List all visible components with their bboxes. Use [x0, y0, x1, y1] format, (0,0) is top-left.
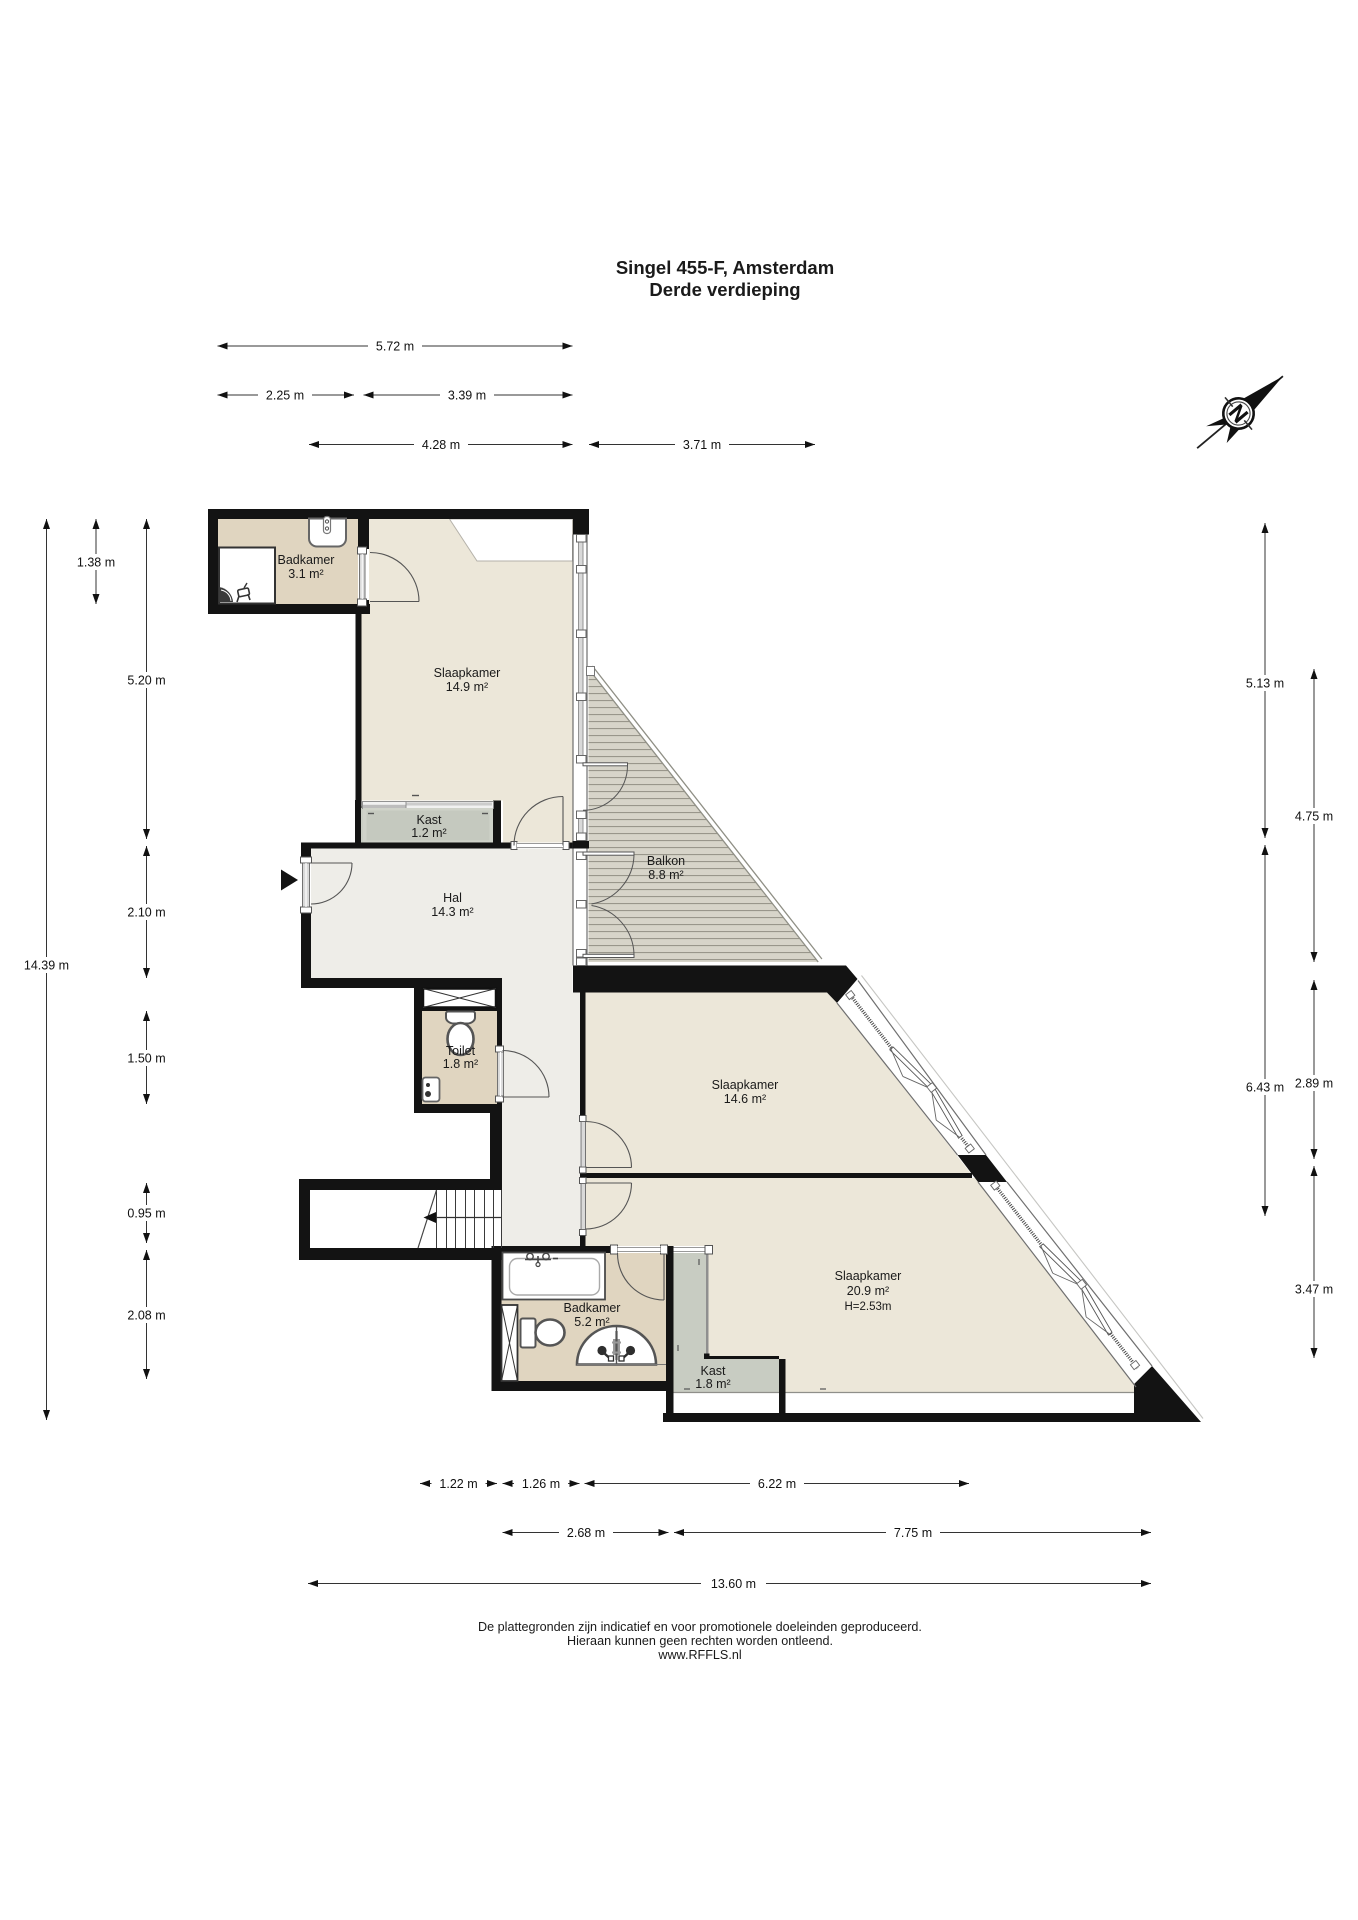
- svg-text:8.8 m²: 8.8 m²: [648, 868, 683, 882]
- svg-text:1.8 m²: 1.8 m²: [443, 1057, 478, 1071]
- svg-text:13.60 m: 13.60 m: [711, 1577, 756, 1591]
- svg-text:Kast: Kast: [700, 1364, 726, 1378]
- svg-text:1.2 m²: 1.2 m²: [411, 826, 446, 840]
- svg-text:www.RFFLS.nl: www.RFFLS.nl: [657, 1648, 741, 1662]
- svg-text:Hal: Hal: [443, 891, 462, 905]
- svg-text:4.28 m: 4.28 m: [422, 438, 460, 452]
- svg-text:1.8 m²: 1.8 m²: [695, 1377, 730, 1391]
- svg-text:1.22 m: 1.22 m: [439, 1477, 477, 1491]
- svg-text:6.22 m: 6.22 m: [758, 1477, 796, 1491]
- svg-text:2.89 m: 2.89 m: [1295, 1077, 1333, 1091]
- svg-text:1.50 m: 1.50 m: [127, 1052, 165, 1066]
- svg-text:3.39 m: 3.39 m: [448, 389, 486, 403]
- svg-text:14.3 m²: 14.3 m²: [431, 905, 473, 919]
- svg-text:2.68 m: 2.68 m: [567, 1526, 605, 1540]
- svg-text:7.75 m: 7.75 m: [894, 1526, 932, 1540]
- svg-text:5.72 m: 5.72 m: [376, 340, 414, 354]
- svg-text:3.71 m: 3.71 m: [683, 438, 721, 452]
- svg-text:14.9 m²: 14.9 m²: [446, 680, 488, 694]
- svg-text:2.10 m: 2.10 m: [127, 906, 165, 920]
- svg-text:3.47 m: 3.47 m: [1295, 1283, 1333, 1297]
- svg-text:Slaapkamer: Slaapkamer: [712, 1078, 779, 1092]
- svg-text:Balkon: Balkon: [647, 854, 685, 868]
- svg-text:Badkamer: Badkamer: [564, 1301, 621, 1315]
- svg-text:Toilet: Toilet: [446, 1044, 476, 1058]
- svg-text:4.75 m: 4.75 m: [1295, 810, 1333, 824]
- svg-text:Singel 455-F, Amsterdam: Singel 455-F, Amsterdam: [616, 257, 834, 278]
- svg-text:20.9 m²: 20.9 m²: [847, 1284, 889, 1298]
- svg-text:14.39 m: 14.39 m: [24, 959, 69, 973]
- svg-text:Slaapkamer: Slaapkamer: [835, 1269, 902, 1283]
- svg-text:0.95 m: 0.95 m: [127, 1207, 165, 1221]
- svg-text:5.20 m: 5.20 m: [127, 674, 165, 688]
- svg-text:Badkamer: Badkamer: [278, 553, 335, 567]
- svg-text:5.13 m: 5.13 m: [1246, 677, 1284, 691]
- svg-text:2.08 m: 2.08 m: [127, 1309, 165, 1323]
- svg-text:Hieraan kunnen geen rechten wo: Hieraan kunnen geen rechten worden ontle…: [567, 1634, 833, 1648]
- svg-text:Kast: Kast: [416, 813, 442, 827]
- svg-text:De plattegronden zijn indicati: De plattegronden zijn indicatief en voor…: [478, 1620, 922, 1634]
- svg-text:6.43 m: 6.43 m: [1246, 1081, 1284, 1095]
- svg-text:Derde verdieping: Derde verdieping: [649, 279, 800, 300]
- svg-text:5.2 m²: 5.2 m²: [574, 1315, 609, 1329]
- svg-text:2.25 m: 2.25 m: [266, 389, 304, 403]
- svg-text:3.1 m²: 3.1 m²: [288, 567, 323, 581]
- svg-text:Slaapkamer: Slaapkamer: [434, 666, 501, 680]
- svg-text:1.26 m: 1.26 m: [522, 1477, 560, 1491]
- svg-text:H=2.53m: H=2.53m: [845, 1301, 892, 1313]
- svg-text:1.38 m: 1.38 m: [77, 556, 115, 570]
- svg-text:14.6 m²: 14.6 m²: [724, 1092, 766, 1106]
